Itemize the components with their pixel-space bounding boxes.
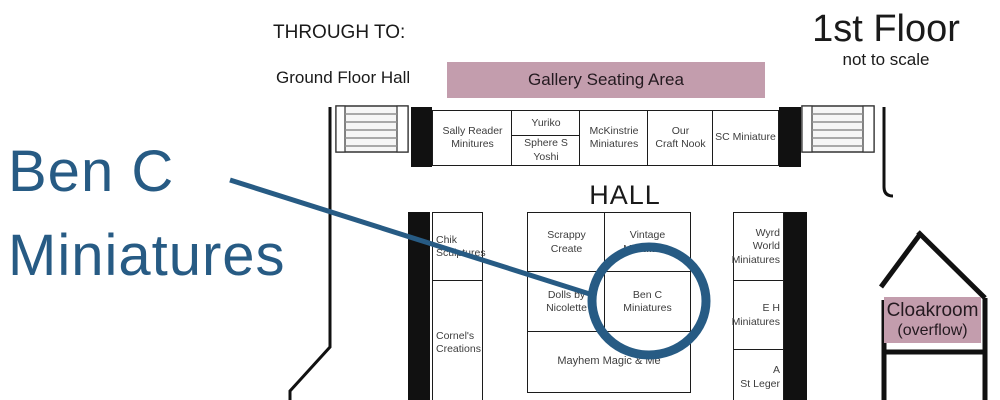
booth-mayhem-magic: Mayhem Magic & Me (527, 331, 691, 393)
booth-sc-miniature: SC Miniature (712, 110, 779, 166)
booth-eh-miniatures: E H Miniatures (733, 280, 784, 351)
gallery-seating-area: Gallery Seating Area (447, 62, 765, 98)
booth-yuriko: Yuriko (511, 110, 581, 137)
booth-wyrd-world: Wyrd World Miniatures (733, 212, 784, 282)
left-wall-line (290, 107, 330, 400)
right-wall-block-top (779, 107, 801, 167)
callout-line2: Miniatures (8, 214, 286, 298)
booth-ben-c-miniatures: Ben C Miniatures (604, 271, 691, 333)
callout-line1: Ben C (8, 130, 286, 214)
right-wall-block-mid (782, 212, 807, 400)
hall-label: HALL (560, 180, 690, 211)
floor-subtitle: not to scale (800, 50, 972, 70)
left-wall-block-top (411, 107, 432, 167)
booth-a-st-leger: A St Leger (733, 349, 784, 400)
right-stairs-icon (802, 106, 874, 152)
booth-chik-sculptures: Chik Sculptures (432, 212, 483, 282)
cloakroom-label: Cloakroom (887, 300, 979, 322)
left-stairs-icon (336, 106, 408, 152)
ground-floor-label: Ground Floor Hall (276, 68, 410, 88)
booth-cornels-creations: Cornel's Creations (432, 280, 483, 400)
booth-sally-reader: Sally Reader Minitures (432, 110, 513, 166)
cloakroom-sublabel: (overflow) (897, 322, 967, 340)
through-to-label: THROUGH TO: (273, 22, 405, 44)
booth-our-craft-nook: Our Craft Nook (647, 110, 714, 166)
booth-mckinstrie: McKinstrie Miniatures (579, 110, 649, 166)
cloakroom-area: Cloakroom (overflow) (884, 297, 981, 343)
right-wall-line (884, 107, 893, 196)
booth-vintage-miniatures: Vintage Miniatures (604, 212, 691, 273)
floor-title: 1st Floor (800, 8, 972, 51)
floor-plan-map: THROUGH TO: Ground Floor Hall 1st Floor … (0, 0, 1000, 400)
booth-dolls-by-nicolette: Dolls by Nicolette (527, 271, 606, 333)
callout-title: Ben C Miniatures (8, 130, 286, 298)
left-wall-block-mid (408, 212, 430, 400)
booth-sphere-s-yoshi: Sphere S Yoshi (511, 135, 581, 166)
booth-scrappy-create: Scrappy Create (527, 212, 606, 273)
